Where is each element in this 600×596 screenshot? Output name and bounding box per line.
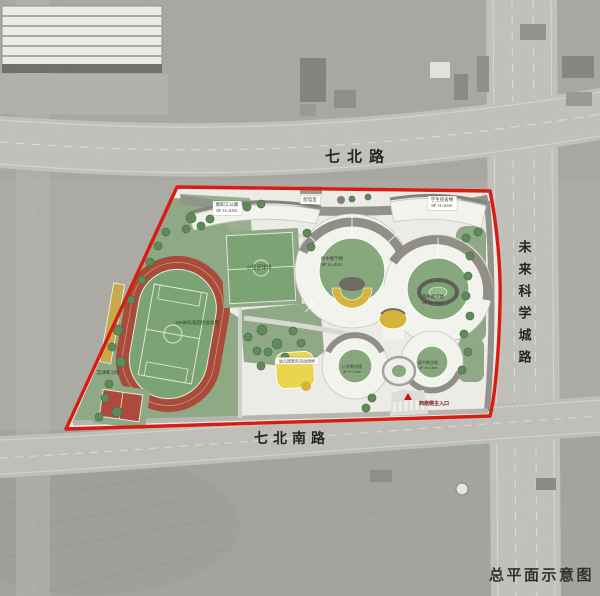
small-oval-ring — [383, 357, 415, 385]
map-graphics — [0, 0, 600, 596]
primary-school-ring-building — [322, 333, 388, 399]
central-connector — [379, 286, 407, 340]
plan-caption: 总平面示意图 — [489, 564, 594, 585]
site-plan-map: 七北路 七北南路 未来科学城路 教职工公寓 6F H=24m 配电室 学生宿舍楼… — [0, 0, 600, 596]
basketball-court — [91, 383, 150, 430]
small-pitch — [220, 228, 302, 308]
entrance-triangle-icon — [404, 393, 412, 400]
